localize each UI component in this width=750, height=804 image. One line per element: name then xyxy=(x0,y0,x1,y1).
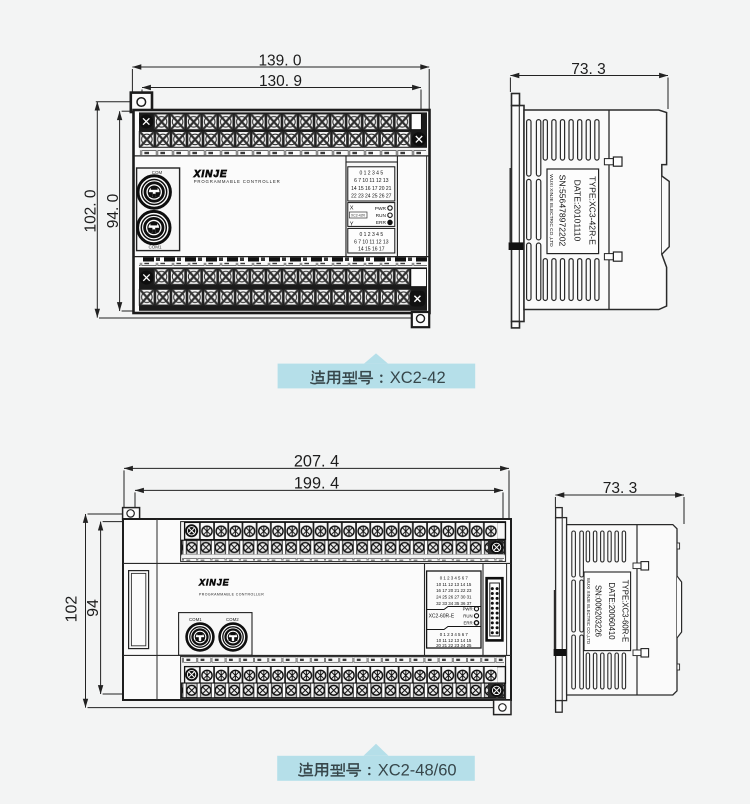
svg-text:RUN: RUN xyxy=(463,613,472,618)
svg-text:PWR: PWR xyxy=(375,206,387,212)
svg-text:XINJE: XINJE xyxy=(198,578,230,588)
svg-text:10 11 12 13 14 15: 10 11 12 13 14 15 xyxy=(436,582,472,587)
svg-text:COM: COM xyxy=(152,170,163,175)
svg-text:SN:556478972202: SN:556478972202 xyxy=(558,175,568,247)
svg-text:PROGRAMMABLE CONTROLLER: PROGRAMMABLE CONTROLLER xyxy=(194,179,281,184)
svg-text:0 1 2 3 4 5: 0 1 2 3 4 5 xyxy=(359,171,383,177)
svg-text:14 15 16 17 20 21: 14 15 16 17 20 21 xyxy=(351,186,392,192)
svg-text:WUXI XINJE ELECTRIC CO.,LTD: WUXI XINJE ELECTRIC CO.,LTD xyxy=(586,578,591,644)
svg-text:ERR: ERR xyxy=(376,220,387,226)
svg-text:TYPE:XC3-60R-E: TYPE:XC3-60R-E xyxy=(621,580,630,642)
svg-text:RUN: RUN xyxy=(376,213,387,219)
svg-text:SN:006203226: SN:006203226 xyxy=(594,585,603,637)
svg-text:TYPE:XC3-42R-E: TYPE:XC3-42R-E xyxy=(588,176,598,245)
svg-text:102: 102 xyxy=(64,596,81,623)
svg-text:20 21 22 23 24 25: 20 21 22 23 24 25 xyxy=(436,643,472,648)
svg-text:14 15 16 17: 14 15 16 17 xyxy=(358,246,385,252)
svg-text:94: 94 xyxy=(85,599,102,617)
svg-text:102. 0: 102. 0 xyxy=(82,189,99,232)
svg-text:XC2-42R: XC2-42R xyxy=(351,214,365,218)
svg-text:130. 9: 130. 9 xyxy=(259,73,302,90)
svg-text:32 33 34 35 36 37: 32 33 34 35 36 37 xyxy=(436,601,472,606)
svg-text:207. 4: 207. 4 xyxy=(294,453,339,471)
svg-text:139. 0: 139. 0 xyxy=(258,52,301,69)
svg-text:0 1 2 3 4 5 6 7: 0 1 2 3 4 5 6 7 xyxy=(440,575,469,580)
svg-text:WUXI XINJE ELECTRIC CO.,LTD: WUXI XINJE ELECTRIC CO.,LTD xyxy=(548,174,554,247)
svg-text:0 1 2 3 4 5 6 7: 0 1 2 3 4 5 6 7 xyxy=(440,632,469,637)
svg-text:COM1: COM1 xyxy=(148,245,161,250)
svg-text:DATE:20101110: DATE:20101110 xyxy=(573,180,583,242)
svg-text:73. 3: 73. 3 xyxy=(571,61,605,78)
svg-text:Y: Y xyxy=(350,221,354,227)
svg-text:X: X xyxy=(350,205,354,211)
svg-text:PROGRAMMABLE CONTROLLER: PROGRAMMABLE CONTROLLER xyxy=(199,593,264,597)
svg-text:ERR: ERR xyxy=(464,620,473,625)
svg-text:COM1: COM1 xyxy=(189,617,202,622)
svg-text:PWR: PWR xyxy=(463,606,473,611)
svg-text:73. 3: 73. 3 xyxy=(603,480,637,497)
svg-text:XC2-60R-E: XC2-60R-E xyxy=(429,614,455,620)
svg-text:94. 0: 94. 0 xyxy=(105,193,122,228)
svg-text:0 1 2 3 4 5: 0 1 2 3 4 5 xyxy=(359,232,383,238)
svg-text:16 17 20 21 22 23: 16 17 20 21 22 23 xyxy=(436,588,472,593)
svg-text:22 23 24 25 26 27: 22 23 24 25 26 27 xyxy=(351,193,392,199)
svg-text:6 7 10 11 12 13: 6 7 10 11 12 13 xyxy=(354,239,389,245)
svg-text:COM2: COM2 xyxy=(226,617,239,622)
svg-text:6 7 10 11 12 13: 6 7 10 11 12 13 xyxy=(354,178,389,184)
svg-text:24 25 26 27 30 31: 24 25 26 27 30 31 xyxy=(436,595,472,600)
svg-text:199. 4: 199. 4 xyxy=(294,475,339,493)
svg-text:XC2-48/60: XC2-48/60 xyxy=(378,762,457,780)
svg-text:XC2-42: XC2-42 xyxy=(390,369,446,387)
svg-text:DATE:20060410: DATE:20060410 xyxy=(607,582,616,640)
